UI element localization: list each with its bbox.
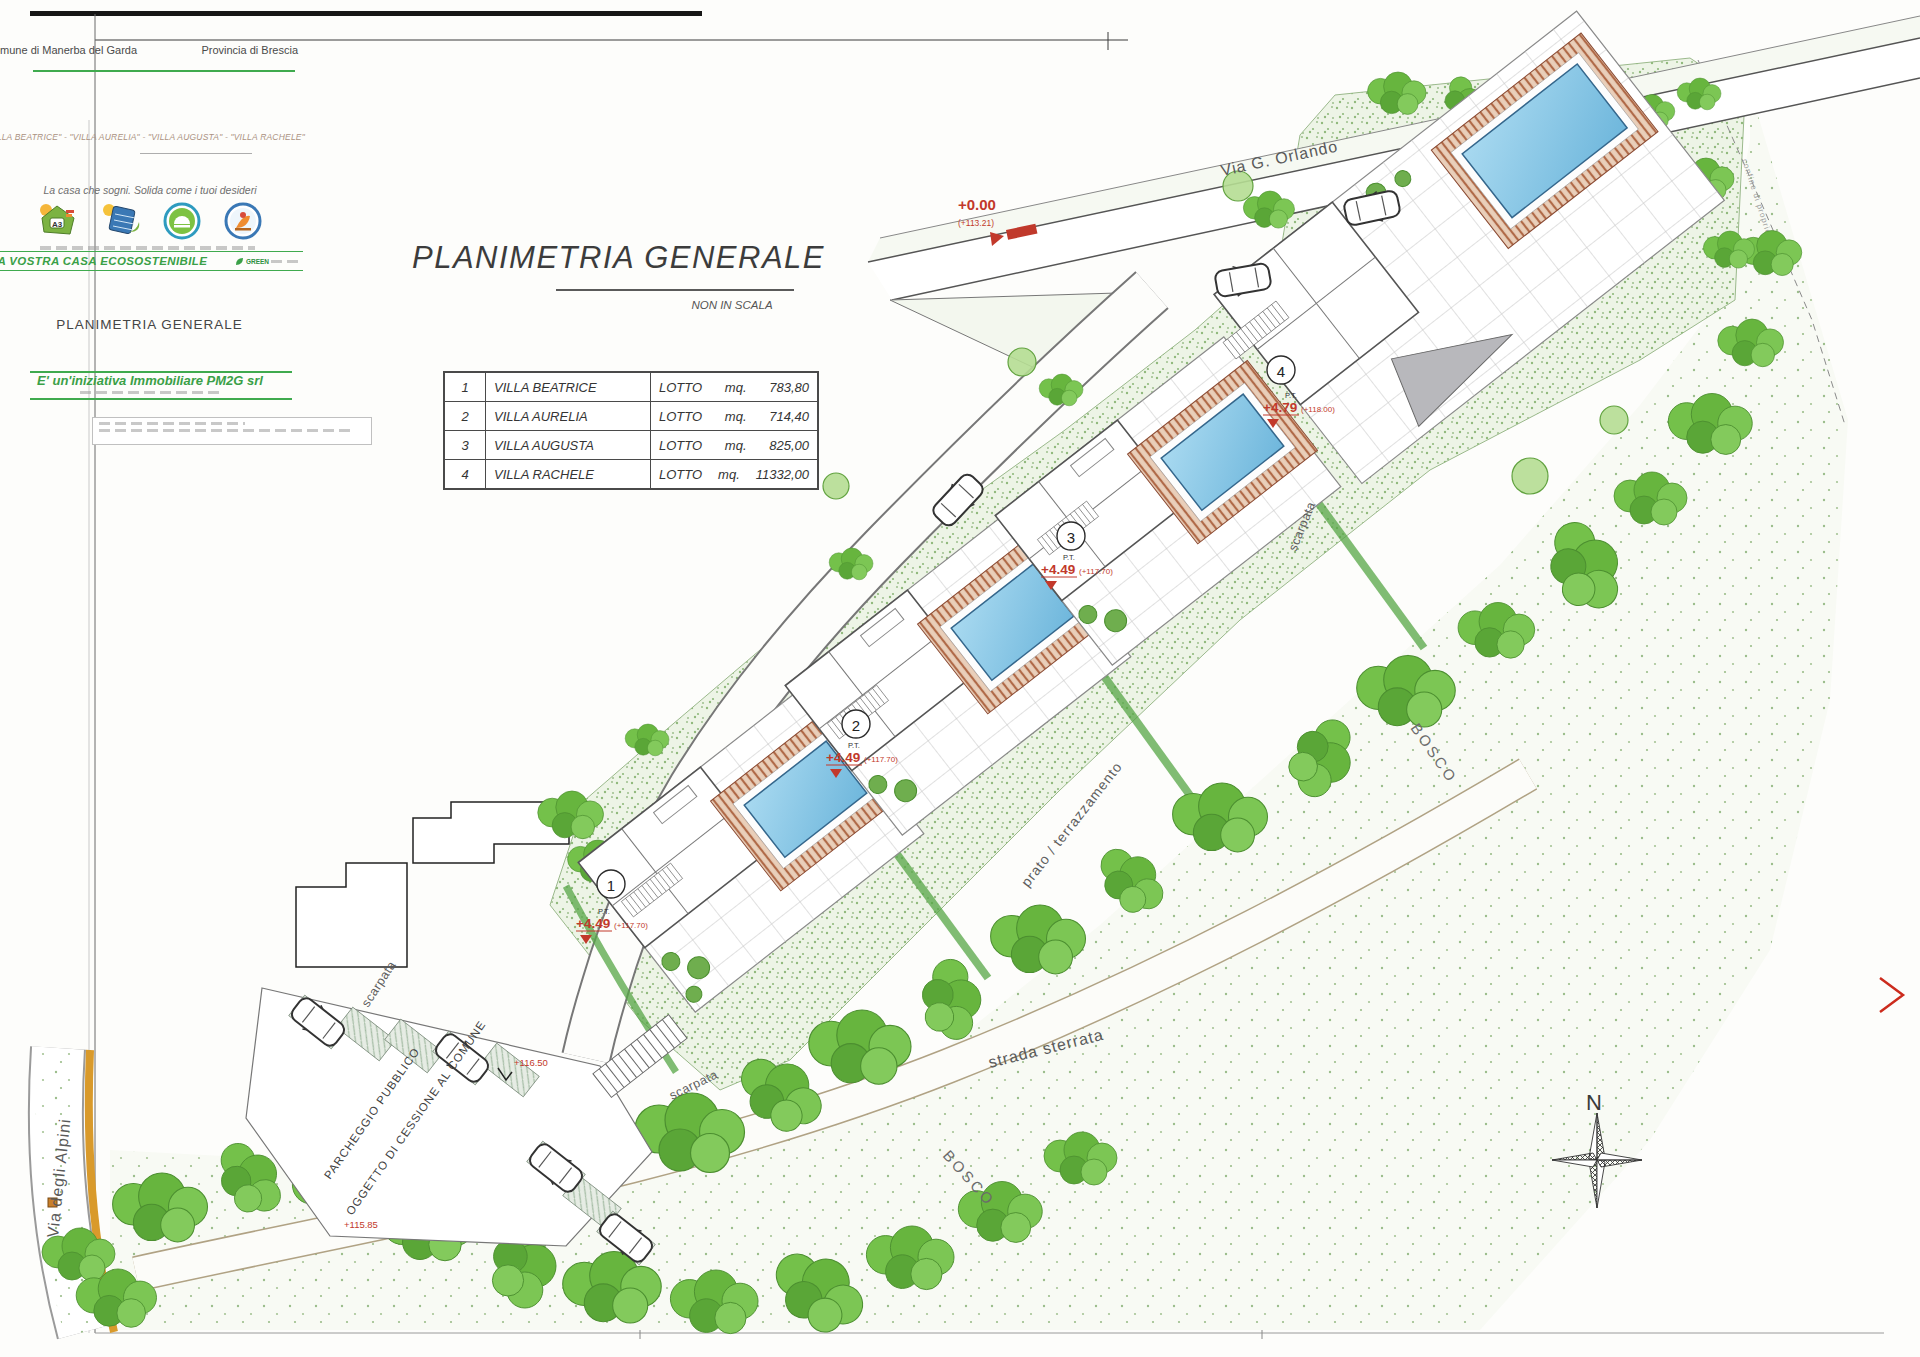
- svg-text:3: 3: [1067, 529, 1075, 546]
- page-title: PLANIMETRIA GENERALE: [412, 240, 825, 276]
- svg-text:2: 2: [852, 717, 860, 734]
- svg-text:N: N: [1586, 1090, 1602, 1115]
- svg-text:1: 1: [607, 877, 615, 894]
- svg-text:+0.00: +0.00: [958, 196, 996, 213]
- svg-text:(+117.70): (+117.70): [614, 921, 648, 930]
- sheet-header: Comune di Manerba del Garda Provincia di…: [0, 44, 298, 56]
- svg-text:+4.49: +4.49: [826, 750, 860, 765]
- photovoltaic-icon: [101, 202, 141, 240]
- svg-text:+4.79: +4.79: [1263, 400, 1297, 415]
- villas-names-line: "VILLA BEATRICE" - "VILLA AURELIA" - "VI…: [0, 132, 310, 142]
- villa-name: VILLA RACHELE: [486, 460, 651, 490]
- eco-icons-row: A3: [36, 202, 262, 240]
- icons-caption-fineprint: [40, 246, 255, 250]
- eco-banner: LA VOSTRA CASA ECOSOSTENIBILE GREEN: [0, 251, 303, 271]
- lot-area: 825,00: [769, 438, 809, 453]
- eco-planet-icon: [224, 202, 262, 240]
- lot-area: 11332,00: [756, 467, 809, 482]
- comune-label: Comune di Manerba del Garda: [0, 44, 137, 56]
- lot-number: 2: [444, 402, 486, 431]
- titleblock-drawing-name: PLANIMETRIA GENERALE: [0, 317, 299, 332]
- table-row: 1 VILLA BEATRICE LOTTO mq. 783,80: [444, 372, 818, 402]
- neighbour-buildings: [296, 802, 569, 967]
- svg-text:(+117.70): (+117.70): [1079, 567, 1113, 576]
- svg-text:P.T.: P.T.: [848, 741, 860, 750]
- svg-text:P.T.: P.T.: [1063, 553, 1075, 562]
- villa-name: VILLA BEATRICE: [486, 372, 651, 402]
- lot-number: 1: [444, 372, 486, 402]
- lot-area: 783,80: [769, 380, 809, 395]
- green-logo: GREEN: [235, 257, 299, 266]
- fineprint-box: [92, 417, 372, 445]
- table-row: 2 VILLA AURELIA LOTTO mq. 714,40: [444, 402, 818, 431]
- header-rule: [33, 70, 295, 72]
- villa-name: VILLA AUGUSTA: [486, 431, 651, 460]
- svg-text:+4.49: +4.49: [1041, 562, 1075, 577]
- site-plan-drawing: confine di proprietà: [0, 0, 1920, 1357]
- svg-text:P.T.: P.T.: [598, 907, 610, 916]
- rule: [30, 398, 292, 400]
- lot-number: 4: [444, 460, 486, 490]
- eco-banner-text: LA VOSTRA CASA ECOSOSTENIBILE: [0, 255, 207, 267]
- svg-text:+116.50: +116.50: [514, 1057, 548, 1068]
- svg-text:(+117.70): (+117.70): [864, 755, 898, 764]
- energy-class-house-icon: A3: [36, 202, 78, 240]
- svg-text:(+118.00): (+118.00): [1301, 405, 1335, 414]
- scan-mark-chevron: [1880, 978, 1903, 1012]
- villa-name: VILLA AURELIA: [486, 402, 651, 431]
- table-row: 3 VILLA AUGUSTA LOTTO mq. 825,00: [444, 431, 818, 460]
- svg-text:+4.49: +4.49: [576, 916, 610, 931]
- eco-dome-icon: [163, 202, 201, 240]
- initiative-subline: [80, 391, 220, 394]
- svg-text:4: 4: [1277, 363, 1285, 380]
- title-underline: [556, 289, 794, 291]
- table-row: 4 VILLA RACHELE LOTTO mq. 11332,00: [444, 460, 818, 490]
- slogan: La casa che sogni. Solida come i tuoi de…: [0, 184, 300, 196]
- lots-table: 1 VILLA BEATRICE LOTTO mq. 783,80 2 VILL…: [443, 371, 819, 490]
- provincia-label: Provincia di Brescia: [201, 44, 298, 56]
- svg-text:P.T.: P.T.: [1285, 391, 1297, 400]
- lot-area: 714,40: [769, 409, 809, 424]
- lot-number: 3: [444, 431, 486, 460]
- svg-text:(+113.21): (+113.21): [958, 218, 994, 228]
- initiative-text: E' un'iniziativa Immobiliare PM2G srl: [0, 373, 300, 388]
- svg-text:+115.85: +115.85: [344, 1219, 378, 1230]
- svg-text:A3: A3: [52, 220, 63, 229]
- leaf-icon: [235, 257, 244, 266]
- divider: [140, 153, 252, 154]
- scale-note: NON IN SCALA: [612, 299, 852, 311]
